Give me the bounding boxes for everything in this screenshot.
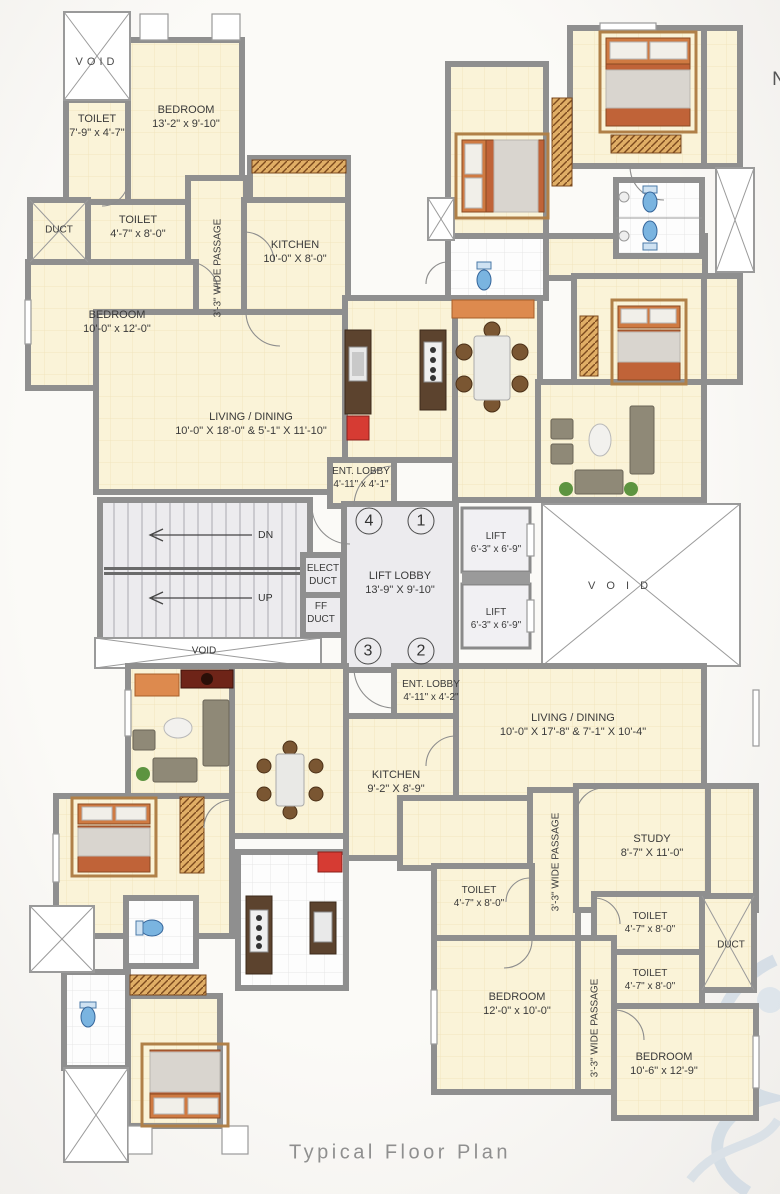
room-label-lift-1: LIFT6'-3" x 6'-9" — [471, 531, 521, 557]
bed — [142, 1044, 228, 1126]
room-label-duct-l: DUCT — [45, 225, 73, 238]
window — [600, 23, 656, 30]
room-label-toilet-l2: TOILET4'-7" x 8'-0" — [110, 213, 165, 241]
room-toilet-trb — [448, 236, 546, 298]
window — [25, 300, 31, 344]
bed — [612, 300, 686, 384]
room-label-toilet-tl: TOILET7'-9" x 4'-7" — [69, 112, 124, 140]
window — [753, 690, 759, 746]
room-label-duct-r: DUCT — [717, 940, 745, 953]
bed — [72, 798, 156, 876]
plant — [136, 767, 150, 781]
unit-number-4: 4 — [356, 508, 383, 535]
room-label-ent-lobby-b: ENT. LOBBY4'-11" x 4'-2" — [402, 679, 460, 705]
room-label-bedroom-l2: BEDROOM10'-0" x 12'-0" — [83, 308, 151, 336]
void-right-label: V O I D — [588, 579, 652, 593]
unit-number-2: 2 — [408, 638, 435, 665]
room-label-living-b: LIVING / DINING10'-0" X 17'-8" & 7'-1" X… — [500, 711, 646, 739]
room-label-toilet-br2: TOILET4'-7" x 8'-0" — [625, 968, 675, 994]
room-label-lift-lobby: LIFT LOBBY13'-9" X 9'-10" — [365, 569, 435, 597]
room-label-lift-2: LIFT6'-3" x 6'-9" — [471, 607, 521, 633]
room-label-ent-lobby-t: ENT. LOBBY4'-11" x 4'-1" — [332, 466, 390, 492]
unit-number-1: 1 — [408, 508, 435, 535]
wardrobe-hatch — [180, 797, 204, 873]
window — [222, 1126, 248, 1154]
room-label-study: STUDY8'-7" X 11'-0" — [621, 832, 684, 860]
red-appliance — [318, 852, 342, 872]
room-label-kitchen-tl: KITCHEN10'-0" X 8'-0" — [263, 238, 326, 266]
room-label-toilet-b1: TOILET4'-7" x 8'-0" — [454, 885, 504, 911]
window — [140, 14, 168, 40]
ff-duct-label: FFDUCT — [307, 601, 335, 627]
stair-landing — [104, 572, 306, 575]
room-toilet-bl2 — [64, 972, 128, 1068]
window — [431, 990, 437, 1044]
room-label-bedroom-b1: BEDROOM12'-0" x 10'-0" — [483, 990, 551, 1018]
elect-duct-label: ELECTDUCT — [307, 563, 339, 589]
stair-up-label: UP — [258, 592, 273, 604]
void-center-label: VOID — [192, 646, 216, 659]
planter-hatch — [252, 160, 346, 173]
lift-door — [527, 524, 534, 556]
balcony-strip — [704, 276, 740, 382]
room-label-passage-b2: 3'-3" WIDE PASSAGE — [590, 979, 603, 1078]
wardrobe-hatch — [611, 135, 681, 153]
room-label-passage-b1: 3'-3" WIDE PASSAGE — [551, 813, 564, 912]
room-label-living-tl: LIVING / DINING10'-0" X 18'-0" & 5'-1" X… — [175, 410, 327, 438]
console — [135, 674, 179, 696]
bed — [456, 134, 548, 218]
balcony-strip — [704, 28, 740, 166]
window — [128, 1126, 152, 1154]
balcony-strip — [708, 786, 756, 910]
floor-plan-page: VOID TOILET7'-9" x 4'-7" BEDROOM13'-2" x… — [0, 0, 780, 1194]
window — [125, 690, 131, 736]
corridor — [400, 798, 530, 868]
wall — [462, 572, 530, 584]
bed — [600, 32, 696, 132]
stair-landing — [104, 567, 306, 570]
sink — [352, 352, 364, 376]
wardrobe-hatch — [580, 316, 598, 376]
window — [212, 14, 240, 40]
stair-dn-label: DN — [258, 529, 273, 541]
plant — [559, 482, 573, 496]
plant — [624, 482, 638, 496]
north-letter: N — [772, 69, 780, 91]
window — [753, 1036, 759, 1088]
plan-caption: Typical Floor Plan — [289, 1142, 511, 1165]
room-label-passage-tl: 3'-3" WIDE PASSAGE — [213, 219, 226, 318]
lift-door — [527, 600, 534, 632]
counter — [452, 300, 534, 318]
red-appliance — [347, 416, 369, 440]
room-label-bedroom-tl: BEDROOM13'-2" x 9'-10" — [152, 103, 220, 131]
room-label-void-tl: VOID — [76, 55, 119, 69]
room-label-toilet-br1: TOILET4'-7" x 8'-0" — [625, 911, 675, 937]
room-label-bedroom-br: BEDROOM10'-6" x 12'-9" — [630, 1050, 698, 1078]
wardrobe-hatch — [130, 975, 206, 995]
unit-number-3: 3 — [355, 638, 382, 665]
wardrobe-hatch — [552, 98, 572, 186]
room-living-tl — [96, 312, 348, 492]
room-label-kitchen-b: KITCHEN9'-2" X 8'-9" — [367, 768, 424, 796]
window — [53, 834, 59, 882]
sink — [314, 912, 332, 942]
